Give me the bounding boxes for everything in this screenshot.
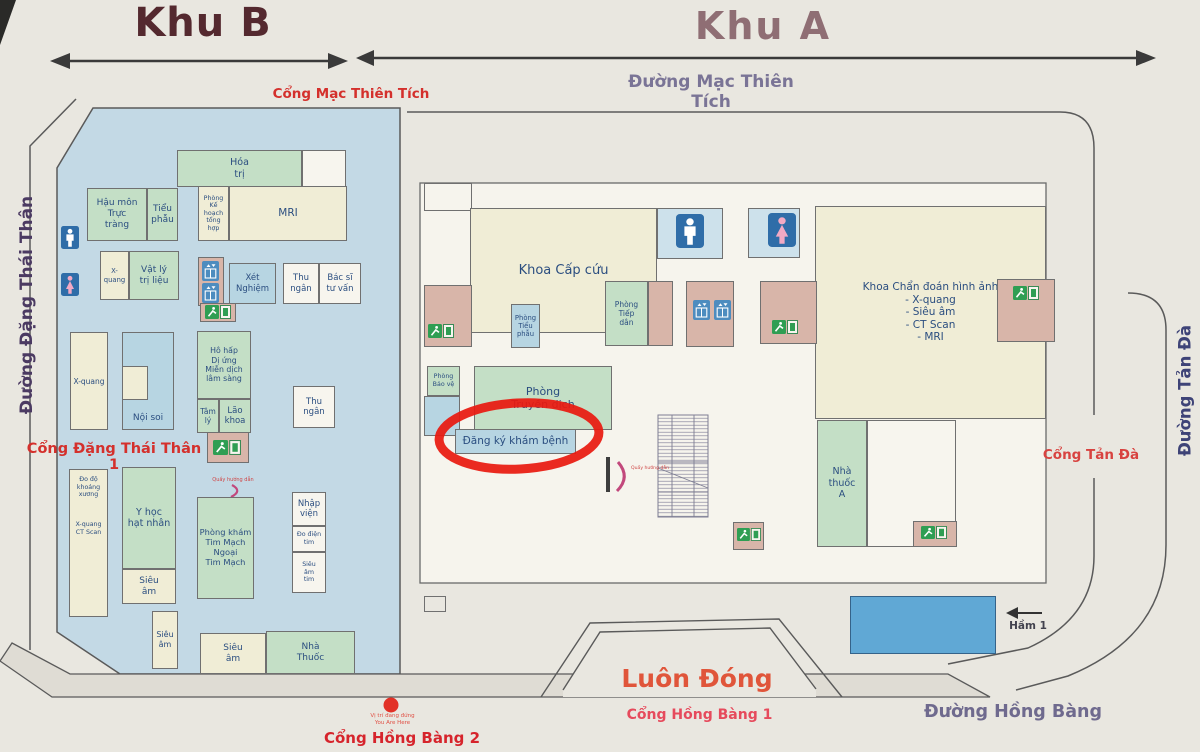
exit-icon — [205, 305, 231, 319]
exit-icon — [428, 324, 454, 338]
gate-tan-da-label: Cổng Tản Đà — [1041, 447, 1141, 463]
you-are-here-vi: Vị trí đang đứng — [355, 713, 430, 720]
gate-hong-bang-1-label: Cổng Hồng Bàng 1 — [612, 707, 787, 723]
room-b-top-blank — [302, 150, 346, 187]
gate-mac-thien-tich-label: Cổng Mạc Thiên Tích — [256, 86, 446, 102]
room-mri-b: MRI — [229, 186, 347, 241]
you-are-here-en: You Are Here — [355, 720, 430, 727]
room-ho-hap-di-ung: Hô hấp Dị ứng Miễn dịch lâm sàng — [197, 331, 251, 399]
hospital-map: Khu B Khu A Cổng Mạc Thiên Tích Đường Mạ… — [0, 0, 1200, 752]
room-a-notch — [424, 596, 446, 612]
room-y-hoc-hat-nhan: Y học hạt nhân — [122, 467, 176, 569]
gate-hong-bang-2-label: Cổng Hồng Bàng 2 — [317, 729, 487, 747]
room-a-wall-block — [424, 183, 472, 211]
room-thu-ngan-1: Thu ngân — [283, 263, 319, 304]
room-phong-truyen-dich: Phòng Truyền dịch — [474, 366, 612, 430]
zone-a-title: Khu A — [663, 4, 863, 48]
zone-b-title: Khu B — [103, 0, 303, 46]
room-x-quang-b1: X- quang — [100, 251, 129, 300]
exit-icon — [737, 528, 761, 541]
always-closed-label: Luôn Đóng — [612, 664, 782, 693]
room-do-do-khoang-xuong: Đo độ khoáng xương X-quang CT Scan — [69, 469, 108, 617]
room-phong-bao-ve: Phòng Bảo vệ — [427, 366, 460, 396]
exit-icon — [213, 440, 241, 455]
room-nhap-vien: Nhập viện — [292, 492, 326, 526]
room-nha-thuoc-b: Nhà Thuốc — [266, 631, 355, 674]
room-sieu-am-tim: Siêu âm tim — [292, 552, 326, 593]
room-tieu-phau-b: Tiểu phẫu — [147, 188, 178, 241]
room-do-dien-tim: Đo điện tim — [292, 526, 326, 552]
elevator-icon — [202, 283, 219, 303]
room-a-tiep-dan-pink — [648, 281, 673, 346]
room-phong-tieu-phau-a: Phòng Tiểu phẫu — [511, 304, 540, 348]
room-dang-ky-kham-benh: Đăng ký khám bệnh — [455, 429, 576, 454]
street-mac-thien-tich-label: Đường Mạc Thiên Tích — [611, 72, 811, 112]
wc-female-icon — [61, 273, 79, 296]
room-xet-nghiem: Xét Nghiệm — [229, 263, 276, 304]
gate-dang-thai-than-1-label: Cổng Đặng Thái Thân 1 — [24, 441, 204, 473]
room-sieu-am-b1: Siêu âm — [122, 569, 176, 604]
street-hong-bang-label: Đường Hồng Bàng — [898, 702, 1128, 722]
room-lao-khoa: Lão khoa — [219, 399, 251, 433]
elevator-icon — [693, 300, 710, 320]
room-sieu-am-b2: Siêu âm — [152, 611, 178, 669]
room-ham-1 — [850, 596, 996, 654]
room-vat-ly-tri-lieu: Vật lý trị liệu — [129, 251, 179, 300]
street-dang-thai-than-label: Đường Đặng Thái Thân — [17, 165, 37, 445]
room-noi-soi-inset — [122, 366, 148, 400]
info-desk-label-b: Quầy hướng dẫn — [203, 477, 263, 483]
elevator-icon — [714, 300, 731, 320]
room-tam-ly: Tâm lý — [197, 399, 219, 433]
exit-icon — [1013, 286, 1039, 300]
room-bac-si-tu-van: Bác sĩ tư vấn — [319, 263, 361, 304]
room-phong-kham-tim-mach: Phòng khám Tim Mạch Ngoại Tim Mạch — [197, 497, 254, 599]
wc-male-icon — [676, 214, 704, 248]
info-desk-label-a: Quầy hướng dẫn — [631, 466, 673, 471]
exit-icon — [772, 320, 798, 334]
wc-male-icon — [61, 226, 79, 249]
room-a-pink-right-1 — [760, 281, 817, 344]
street-tan-da-label: Đường Tản Đà — [1176, 291, 1195, 491]
room-phong-ke-hoach-tong-hop: Phòng Kế hoạch tổng hợp — [198, 186, 229, 241]
basement-label: Hầm 1 — [998, 620, 1058, 632]
room-nha-thuoc-a: Nhà thuốc A — [817, 420, 867, 547]
room-x-quang-b2: X-quang — [70, 332, 108, 430]
room-thu-ngan-2: Thu ngân — [293, 386, 335, 428]
wc-female-icon — [768, 213, 796, 247]
map-rooms-layer: Khu B Khu A Cổng Mạc Thiên Tích Đường Mạ… — [0, 0, 1200, 752]
room-hoa-tri: Hóa trị — [177, 150, 302, 187]
exit-icon — [921, 526, 947, 539]
room-phong-tiep-dan: Phòng Tiếp dân — [605, 281, 648, 346]
you-are-here-label: Vị trí đang đứng You Are Here — [355, 713, 430, 728]
room-hau-mon-truc-trang: Hậu môn Trực tràng — [87, 188, 147, 241]
room-sieu-am-b3: Siêu âm — [200, 633, 266, 674]
elevator-icon — [202, 261, 219, 281]
